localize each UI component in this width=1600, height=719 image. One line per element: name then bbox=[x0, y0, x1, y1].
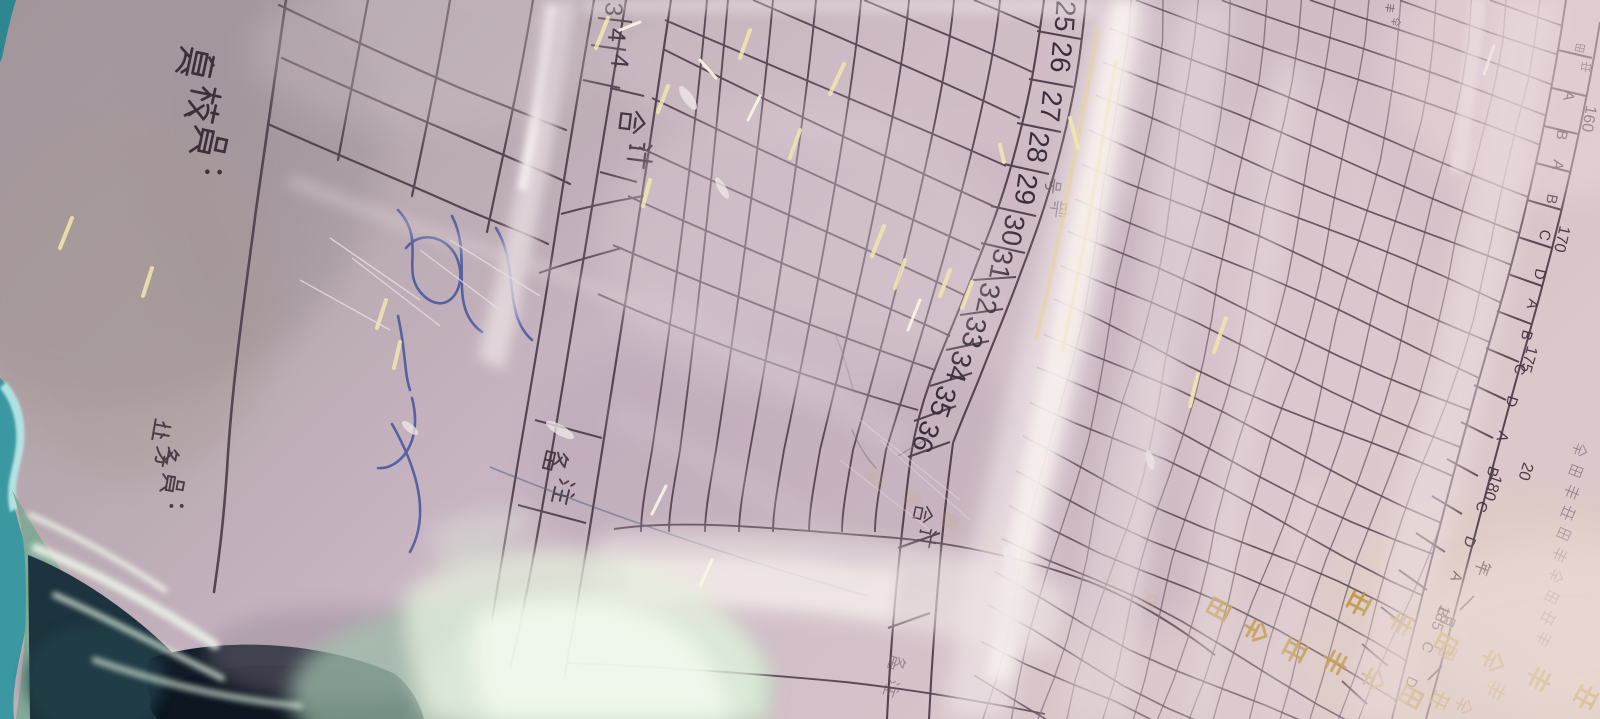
svg-text:27: 27 bbox=[1034, 89, 1068, 123]
svg-text:30: 30 bbox=[995, 212, 1031, 248]
svg-text:29: 29 bbox=[1009, 172, 1044, 207]
svg-text:26: 26 bbox=[1044, 40, 1078, 74]
svg-text:28: 28 bbox=[1021, 130, 1056, 165]
